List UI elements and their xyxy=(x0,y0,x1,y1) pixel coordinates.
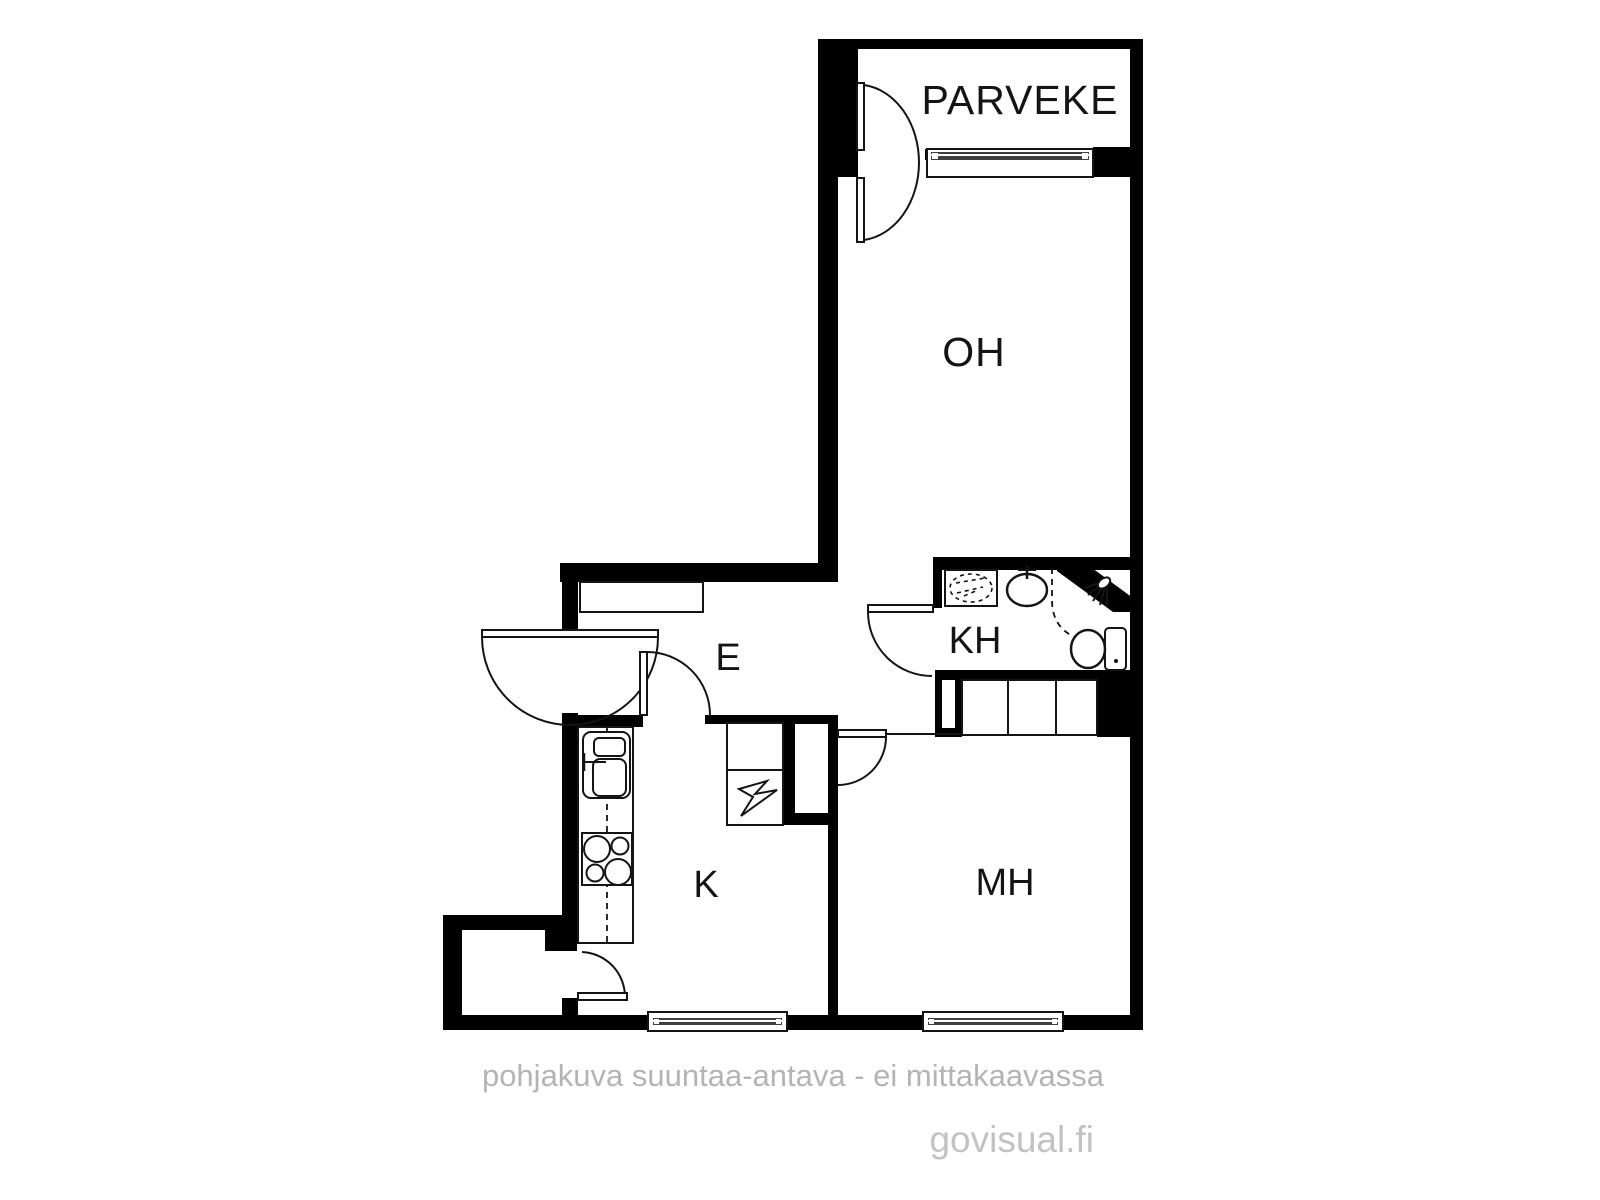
wall-kitchen-top xyxy=(578,715,643,727)
balcony-window xyxy=(927,149,1093,177)
kitchen-door xyxy=(640,652,710,715)
watermark-text: govisual.fi xyxy=(929,1119,1094,1160)
bedroom-window xyxy=(923,1012,1063,1031)
electrical-panel xyxy=(727,723,783,825)
bathroom-door xyxy=(868,605,933,676)
wall-left-outer xyxy=(443,915,462,1030)
wall-shaft-left xyxy=(783,723,795,825)
wall-wardrobe-right-block xyxy=(1097,670,1130,737)
kitchen-window xyxy=(648,1012,787,1031)
wall-entry-left-upper xyxy=(562,563,578,633)
wall-balcony-left-column xyxy=(818,39,858,177)
wall-livingroom-left xyxy=(818,177,838,567)
floor-plan-page: PARVEKE OH KH E K MH pohjakuva suuntaa-a… xyxy=(0,0,1600,1200)
footer: pohjakuva suuntaa-antava - ei mittakaava… xyxy=(482,1058,1105,1160)
wall-entry-kitchen-left xyxy=(562,713,578,916)
wall-bedroom-left xyxy=(828,724,838,1015)
wall-top xyxy=(818,39,1143,49)
floor-plan-drawing: PARVEKE OH KH E K MH pohjakuva suuntaa-a… xyxy=(0,0,1600,1200)
balcony-door xyxy=(857,83,919,242)
wall-wardrobe-slot-bottom xyxy=(942,728,955,737)
label-bedroom: MH xyxy=(975,862,1034,904)
fixtures xyxy=(578,566,1126,943)
alcove-door xyxy=(578,952,627,1000)
wall-right xyxy=(1130,39,1143,1030)
label-entry: E xyxy=(715,637,740,679)
stove xyxy=(582,833,632,885)
bedroom-door xyxy=(838,730,886,785)
wall-wardrobe-left xyxy=(935,670,942,737)
wall-balcony-window-right-block xyxy=(1093,147,1130,177)
entry-closet xyxy=(580,582,703,612)
label-kitchen: K xyxy=(693,864,718,906)
doors xyxy=(482,83,933,1000)
wall-alcove-door-jamb xyxy=(562,998,578,1015)
wall-wardrobe-divider xyxy=(955,670,962,737)
bathroom-sink xyxy=(1007,566,1047,606)
toilet xyxy=(1071,628,1126,670)
kitchen-sink xyxy=(583,732,630,798)
washing-machine xyxy=(945,570,997,606)
walls xyxy=(443,39,1143,1030)
wall-shaft-bottom xyxy=(795,813,828,825)
bedroom-wardrobe xyxy=(886,680,1097,735)
label-living-room: OH xyxy=(942,329,1006,375)
disclaimer-text: pohjakuva suuntaa-antava - ei mittakaava… xyxy=(482,1058,1105,1093)
label-balcony: PARVEKE xyxy=(922,77,1119,123)
entry-door xyxy=(482,630,658,725)
label-bathroom: KH xyxy=(949,620,1002,662)
wall-entry-top xyxy=(560,563,838,582)
wall-bathroom-top xyxy=(933,557,1133,570)
wall-alcove-notch xyxy=(545,915,577,951)
